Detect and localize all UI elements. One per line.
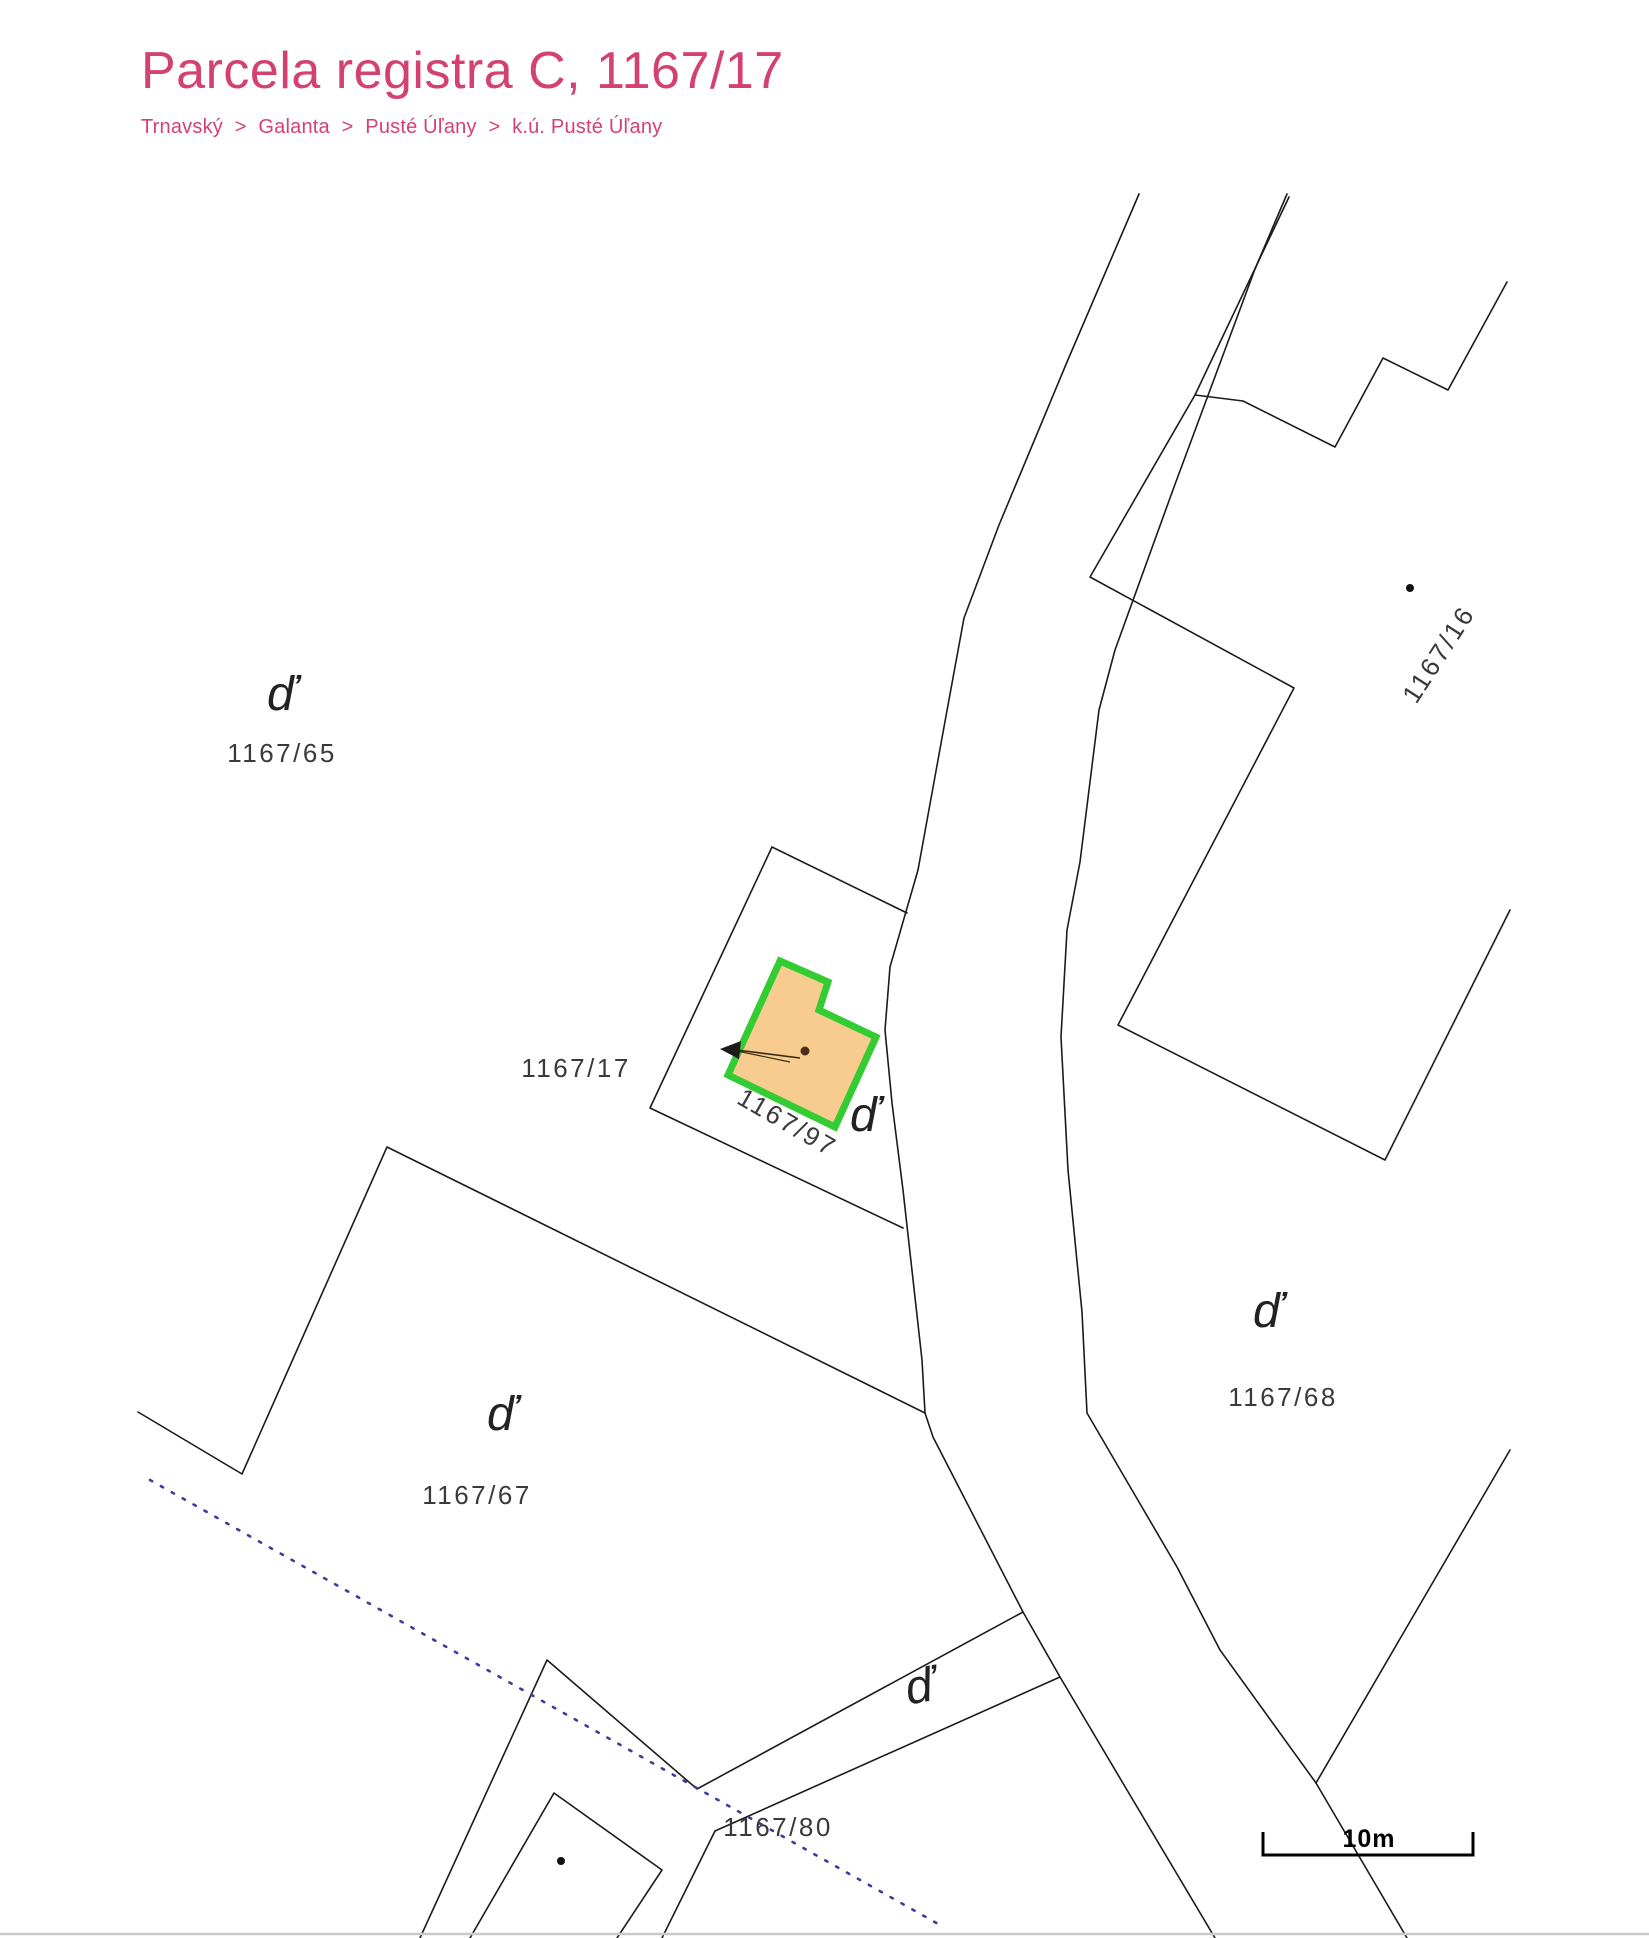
parcel-label-1167-80: 1167/80: [723, 1812, 833, 1842]
side-road-lower-boundary-line: [662, 1677, 1060, 1938]
parcel-68-east-boundary-line: [1316, 1450, 1510, 1783]
road-left-boundary-line: [885, 194, 1215, 1938]
parcel-label-1167-16: 1167/16: [1396, 600, 1481, 708]
scale-label: 10m: [1342, 1825, 1395, 1853]
sw-building-centroid-dot: [557, 1857, 565, 1865]
landuse-d-symbol: ď: [1253, 1285, 1288, 1338]
parcel-16-north-boundary-line: [1195, 197, 1289, 395]
leader-arrowhead-icon: [720, 1041, 741, 1059]
landuse-d-symbol: ď: [487, 1388, 522, 1441]
parcel-16-centroid-dot: [1406, 584, 1414, 592]
road-right-boundary-line: [1061, 194, 1407, 1938]
parcel-label-1167-68: 1167/68: [1228, 1382, 1338, 1412]
landuse-d-symbol: ď: [267, 668, 302, 721]
side-road-upper-boundary-line: [420, 1612, 1023, 1938]
cadastral-map-canvas[interactable]: 1167/65 1167/17 1167/97 1167/16 1167/68 …: [0, 0, 1649, 1938]
sw-building-outline: [470, 1793, 662, 1938]
parcel-label-1167-65: 1167/65: [227, 738, 337, 768]
parcel-label-1167-17: 1167/17: [521, 1053, 631, 1083]
landuse-d-symbol: ď: [901, 1657, 945, 1715]
selected-parcel-centroid-dot: [801, 1047, 810, 1056]
parcel-label-1167-67: 1167/67: [422, 1480, 532, 1510]
landuse-d-symbol: ď: [850, 1089, 885, 1142]
parcel-67-boundary-polyline: [138, 1147, 925, 1474]
parcel-16-boundary-polyline: [1090, 395, 1510, 1160]
dotted-parcel-boundary-line: [150, 1480, 940, 1925]
